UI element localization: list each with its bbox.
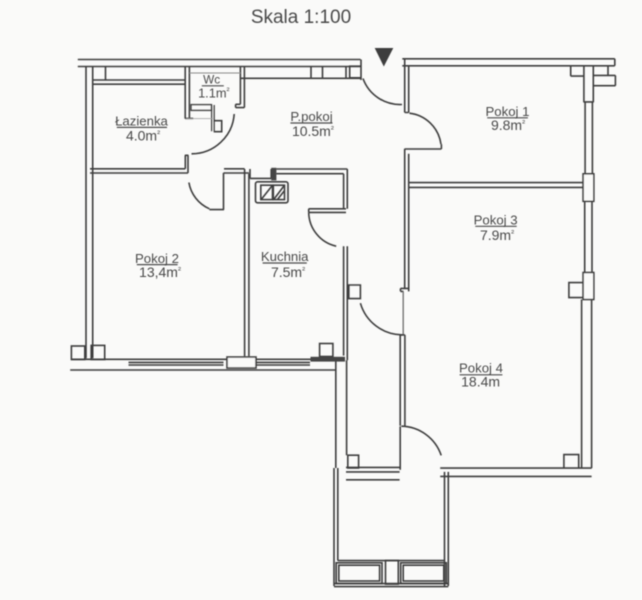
svg-text:Łazienka: Łazienka (115, 114, 168, 129)
svg-text:18.4m: 18.4m (461, 374, 500, 390)
svg-text:9.8m²: 9.8m² (491, 117, 525, 133)
svg-text:10.5m²: 10.5m² (292, 123, 334, 139)
svg-text:1.1m²: 1.1m² (198, 86, 229, 101)
svg-text:Skala 1:100: Skala 1:100 (251, 7, 351, 28)
svg-text:13,4m²: 13,4m² (139, 264, 181, 280)
svg-text:Wc: Wc (203, 72, 220, 86)
svg-text:Kuchnia: Kuchnia (261, 249, 309, 264)
svg-text:P.pokoj: P.pokoj (290, 109, 332, 124)
svg-text:7.9m²: 7.9m² (480, 227, 514, 243)
svg-text:7.5m²: 7.5m² (271, 264, 305, 280)
svg-text:4.0m²: 4.0m² (126, 128, 160, 144)
svg-text:Pokoj 3: Pokoj 3 (474, 213, 518, 228)
